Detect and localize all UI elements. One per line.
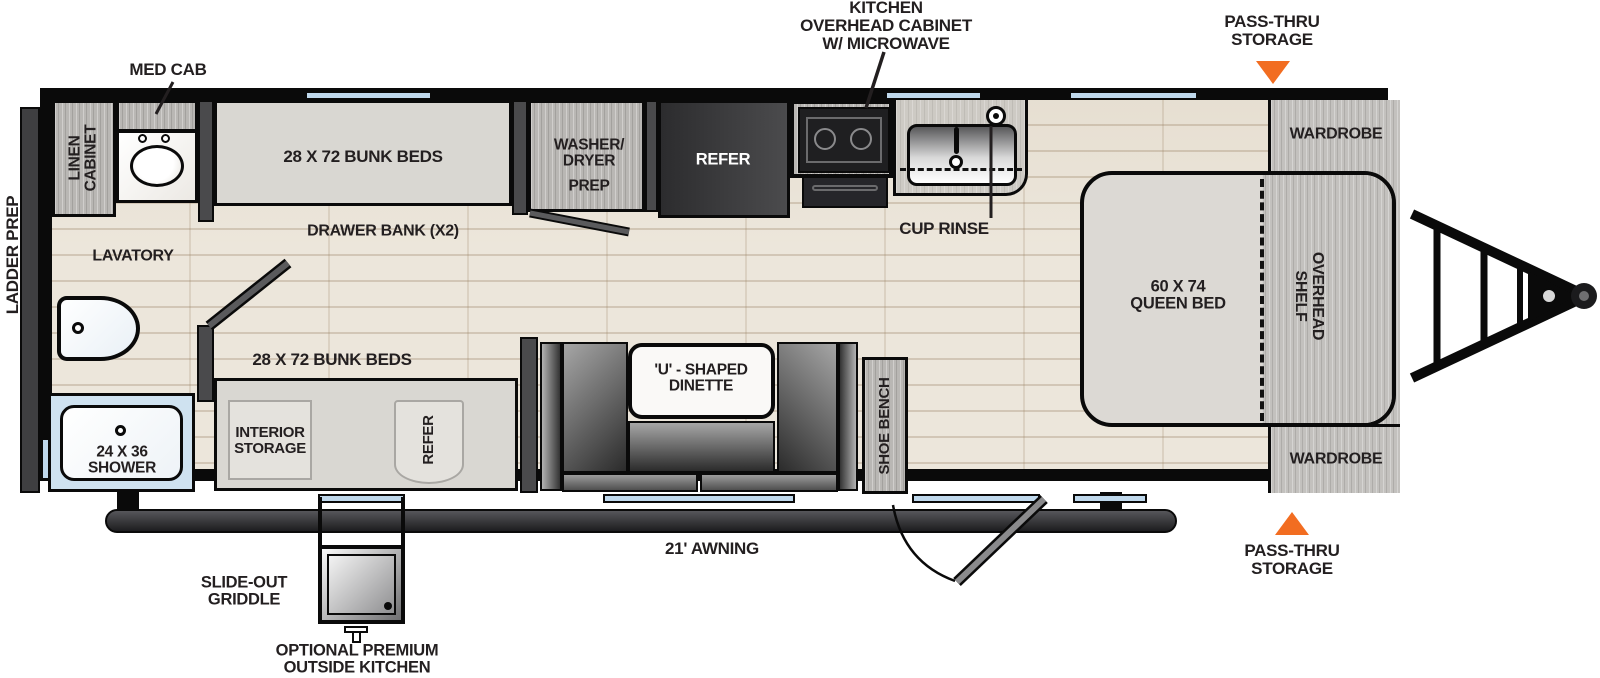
slide-out-griddle-label: SLIDE-OUT GRIDDLE	[201, 575, 287, 610]
dinette-label: 'U' - SHAPED DINETTE	[654, 363, 747, 396]
shower-label: 24 X 36 SHOWER	[88, 445, 156, 478]
hitch-pin	[1542, 289, 1556, 303]
cup-rinse-knob-dot	[993, 113, 999, 119]
cup-rinse-label: CUP RINSE	[899, 220, 989, 238]
wall-divider	[645, 100, 658, 212]
lavatory-label: LAVATORY	[92, 249, 173, 266]
window	[305, 91, 432, 100]
pass-thru-bottom-arrow	[1275, 512, 1309, 535]
bunk-beds-top-label: 28 X 72 BUNK BEDS	[283, 148, 442, 166]
pass-thru-bottom-label: PASS-THRU STORAGE	[1244, 542, 1339, 578]
shoe-bench-label: SHOE BENCH	[877, 377, 893, 474]
dinette-back-left	[540, 342, 562, 491]
window	[1073, 494, 1147, 503]
dinette-seat-left	[562, 342, 628, 473]
dinette-seat-middle	[628, 421, 775, 473]
wardrobe-top-label: WARDROBE	[1290, 127, 1383, 144]
window	[1069, 91, 1198, 100]
kitchen-faucet-base	[949, 155, 963, 169]
hitch-rail-top	[1412, 214, 1576, 291]
floorplan-diagram: LADDER PREP LINEN CABINET 28 X 72 BUNK B…	[0, 0, 1600, 678]
wall-divider	[512, 100, 528, 215]
bed-shelf-dashed-line	[1260, 179, 1264, 421]
toilet-flush	[72, 322, 84, 334]
oven-detail	[812, 185, 878, 191]
medicine-cabinet	[116, 100, 198, 132]
window	[41, 438, 50, 480]
awning-bar	[105, 509, 1177, 533]
window	[318, 494, 405, 503]
rear-bumper	[20, 107, 40, 493]
drawer-bank-label: DRAWER BANK (X2)	[307, 224, 459, 241]
bathroom-door-post	[197, 325, 214, 402]
queen-bed	[1080, 171, 1396, 427]
overhead-shelf-label: OVERHEAD SHELF	[1291, 252, 1325, 340]
hitch-rail-bottom	[1412, 301, 1576, 378]
kitchen-overhead-label: KITCHEN OVERHEAD CABINET W/ MICROWAVE	[800, 0, 972, 53]
overhead-cabinet-outline	[790, 100, 893, 178]
wardrobe-bottom-label: WARDROBE	[1290, 452, 1383, 469]
awning-label: 21' AWNING	[665, 540, 759, 558]
interior-storage-label: INTERIOR STORAGE	[234, 425, 306, 457]
pass-thru-top-arrow	[1256, 61, 1290, 84]
griddle-handle	[344, 626, 368, 633]
toilet	[57, 296, 140, 361]
overhead-shelf-area	[1262, 175, 1396, 427]
queen-bed-label: 60 X 74 QUEEN BED	[1130, 279, 1225, 314]
pass-thru-top-label: PASS-THRU STORAGE	[1224, 13, 1319, 49]
wall-divider	[198, 100, 214, 222]
hitch-coupler-ball-center	[1579, 291, 1589, 301]
bath-faucet-knob	[161, 134, 170, 143]
oven-drawer	[802, 176, 888, 208]
hitch-coupler-ball	[1571, 283, 1597, 309]
ladder-prep-label: LADDER PREP	[4, 196, 22, 315]
griddle-knob	[384, 602, 392, 610]
dinette-seat-right	[777, 342, 838, 473]
washer-dryer-label: WASHER/ DRYER PREP	[554, 137, 624, 194]
entry-door-window	[912, 494, 1040, 503]
bath-sink-bowl	[130, 145, 184, 187]
refrigerator-top-label: REFER	[696, 151, 750, 168]
dinette-seat-front-left	[562, 473, 698, 492]
outside-kitchen-label: OPTIONAL PREMIUM OUTSIDE KITCHEN	[276, 643, 439, 678]
kitchen-sink	[907, 124, 1017, 186]
dinette-seat-front-right	[700, 473, 838, 492]
window	[603, 494, 795, 503]
linen-cabinet-label: LINEN CABINET	[68, 125, 101, 192]
bath-faucet-knob	[138, 134, 147, 143]
shower-drain	[115, 425, 126, 436]
kitchen-faucet	[954, 127, 959, 154]
wall-divider	[520, 337, 538, 493]
med-cab-label: MED CAB	[129, 61, 206, 79]
refrigerator-bottom-label: REFER	[421, 415, 437, 464]
counter-flip-extension	[900, 168, 1022, 171]
hitch-coupler-plate	[1528, 271, 1576, 322]
window	[885, 91, 982, 100]
bunk-beds-bottom-label: 28 X 72 BUNK BEDS	[252, 351, 411, 369]
dinette-back-right	[838, 342, 858, 491]
